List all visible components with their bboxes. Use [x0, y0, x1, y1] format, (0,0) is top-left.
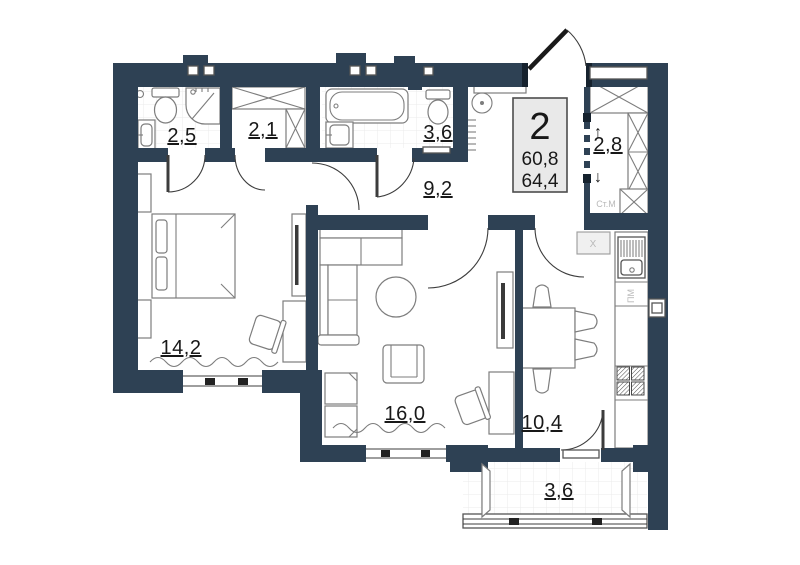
unit-total-area: 64,4: [522, 171, 559, 192]
shower: [186, 88, 220, 124]
fridge-label: X: [590, 239, 597, 250]
tv-icon: [295, 225, 299, 285]
tv-icon-2: [501, 283, 505, 339]
floor-plan-canvas: X: [0, 0, 800, 565]
room-label-bedroom: 14,2: [161, 337, 202, 359]
dishwasher-label: ПМ: [626, 289, 636, 303]
coffee-table: [376, 277, 416, 317]
arrow-down-icon: ↓: [594, 169, 602, 186]
room-label-bathroom: 3,6: [423, 122, 452, 144]
living-tv-unit: [497, 272, 513, 348]
window-bedroom: [183, 370, 262, 393]
dining-table: [522, 308, 575, 368]
room-label-balcony: 3,6: [544, 480, 573, 502]
washing-machine-label: Ст.М: [596, 199, 616, 209]
bathroom2-sink: [326, 122, 353, 148]
bathtub: [326, 89, 408, 123]
fridge: X: [577, 232, 610, 254]
toilet: [152, 88, 179, 123]
armchair: [383, 345, 424, 383]
bathroom-sink: [138, 120, 155, 150]
window-living: [366, 445, 446, 462]
unit-rooms-count: 2: [529, 106, 550, 148]
room-label-wardrobe: 2,8: [593, 134, 622, 156]
room-label-closet: 2,1: [248, 119, 277, 141]
bedroom-tv-unit: [292, 214, 306, 296]
unit-living-area: 60,8: [522, 149, 559, 170]
unit-info-badge: 2 60,8 64,4: [513, 98, 567, 192]
room-label-living-room: 16,0: [385, 403, 426, 425]
bed: [152, 214, 235, 298]
kitchen-sink: [618, 237, 645, 278]
bedroom-desk: [283, 301, 306, 362]
floor-plan: X: [0, 0, 800, 565]
room-label-kitchen: 10,4: [522, 412, 563, 434]
room-label-hallway: 9,2: [423, 178, 452, 200]
toilet-2: [426, 90, 450, 124]
living-desk: [489, 372, 514, 434]
wardrobe-niche: [590, 67, 647, 79]
room-label-bathroom-ensuite: 2,5: [167, 125, 196, 147]
